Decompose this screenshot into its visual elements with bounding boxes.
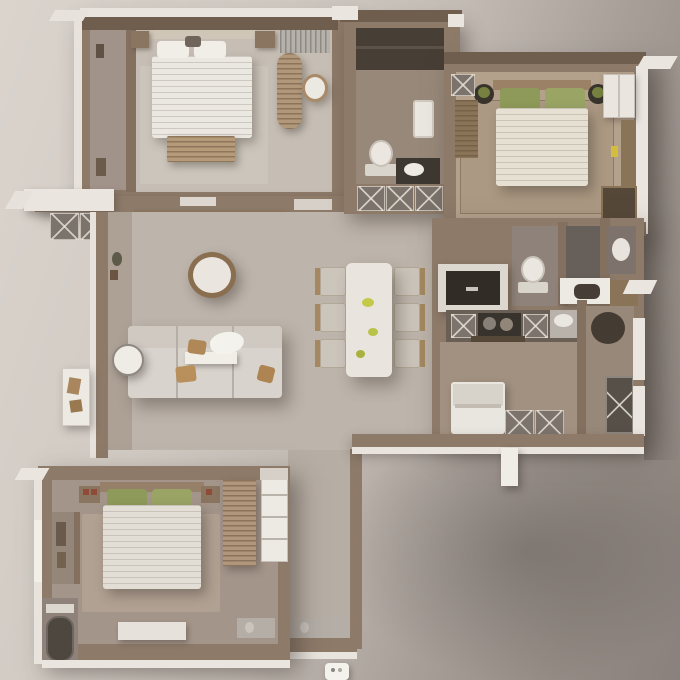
thermostat-chip bbox=[325, 663, 349, 680]
bedroom2-bed-duvet bbox=[496, 108, 588, 186]
dining-table bbox=[346, 263, 392, 377]
living-left-wall bbox=[96, 212, 108, 458]
bedroom1-accent-pillow bbox=[185, 36, 201, 47]
bathroom1-sink-basin bbox=[404, 163, 424, 176]
bedroom3-shelf-line-2 bbox=[261, 516, 288, 518]
kitchen-bar-faucet bbox=[466, 287, 478, 291]
bathroom1-top-cap-left bbox=[332, 6, 358, 20]
balcony-closet-item-top bbox=[96, 44, 104, 58]
kitchen-cabinet-x-2 bbox=[523, 314, 548, 338]
bedroom2-closet-door-line bbox=[618, 74, 620, 118]
bedroom2-desk-lamp bbox=[611, 146, 618, 157]
floor-plan bbox=[0, 0, 680, 680]
dining-table-dish-1 bbox=[362, 298, 374, 307]
washing-machine-lid bbox=[453, 384, 503, 406]
corridor-dark-basin bbox=[591, 312, 625, 344]
dining-chair-back-4 bbox=[420, 268, 425, 295]
entry-cabinet-x-1 bbox=[50, 213, 79, 240]
bathroom1-toilet-bowl bbox=[369, 140, 393, 167]
hallway-bottom-cap bbox=[285, 652, 357, 659]
bedroom2-cabinet-dark bbox=[601, 186, 637, 222]
dining-chair-back-5 bbox=[420, 304, 425, 331]
bedroom1-nightstand-left bbox=[131, 31, 149, 48]
doorway-threshold-bedroom1 bbox=[294, 199, 332, 210]
wall-item-left bbox=[110, 270, 118, 280]
background-shadow-right-edge bbox=[644, 60, 680, 460]
bathroom1-top-wall-dark bbox=[340, 10, 462, 22]
dining-chair-seat-4 bbox=[394, 267, 420, 296]
bedroom1-divider-wall bbox=[126, 30, 136, 192]
wall-plant-left bbox=[112, 252, 122, 266]
entry-door-leaf bbox=[501, 448, 518, 486]
bedroom2-ladder-shelf bbox=[455, 100, 478, 158]
bedroom3-nightstand-left-knob-2 bbox=[91, 489, 97, 495]
bedroom3-doormat bbox=[237, 618, 275, 638]
bathroom3-fixture bbox=[612, 238, 630, 261]
dining-chair-seat-2 bbox=[320, 303, 346, 332]
bedroom3-door-threshold bbox=[260, 468, 288, 480]
bedroom3-doormat-object bbox=[245, 622, 254, 633]
bedroom2-right-wall-cap bbox=[636, 66, 648, 234]
washing-machine-handle bbox=[455, 404, 501, 408]
hallway-mat-object bbox=[300, 622, 309, 633]
corridor-right-cap-1 bbox=[633, 318, 645, 380]
hallway-right-wall bbox=[350, 449, 362, 649]
kitchen-low-cabinet-x-2 bbox=[535, 410, 564, 436]
bedroom3-bottom-cap bbox=[42, 660, 290, 668]
bedroom3-niche-item-1 bbox=[56, 522, 66, 546]
wall-top-white-segment bbox=[180, 197, 216, 206]
bathroom2-toilet-tank bbox=[518, 282, 548, 293]
sofa-cushion-wood-1 bbox=[187, 339, 207, 355]
kitchen-sink-basin bbox=[554, 314, 573, 327]
bedroom1-bed-duvet bbox=[152, 56, 252, 138]
bedroom2-cabinet-x bbox=[451, 74, 475, 96]
dining-chair-back-6 bbox=[420, 340, 425, 367]
bathroom1-closet-dark bbox=[356, 28, 444, 70]
dining-chair-seat-3 bbox=[320, 339, 346, 368]
bedroom3-shelf-line-1 bbox=[261, 494, 288, 496]
dining-table-dish-2 bbox=[368, 328, 378, 336]
bathroom1-cabinet-x-1 bbox=[357, 186, 385, 211]
corridor-right-cap-2 bbox=[633, 386, 645, 436]
bedroom2-plant-left-leaves bbox=[478, 87, 490, 98]
thermostat-chip-dot-1 bbox=[331, 668, 335, 672]
shower-glass-door bbox=[605, 376, 634, 434]
bedroom1-foot-bench bbox=[167, 136, 235, 162]
bedroom1-headboard bbox=[150, 30, 256, 39]
bedroom3-nightstand-left-knob-1 bbox=[83, 489, 89, 495]
hallway-mat-2 bbox=[324, 616, 350, 637]
bedroom3-shelf-line-3 bbox=[261, 538, 288, 540]
thermostat-chip-dot-2 bbox=[338, 668, 342, 672]
sofa-tray bbox=[185, 352, 237, 364]
bathroom1-mirror bbox=[413, 100, 434, 138]
bedroom2-top-wall-dark bbox=[444, 52, 646, 64]
bedroom1-curtain bbox=[280, 30, 330, 53]
bedroom3-bed-duvet bbox=[103, 505, 201, 589]
bedroom1-left-wall-cap bbox=[74, 12, 82, 198]
bedroom1-top-wall-dark bbox=[80, 17, 338, 30]
bathroom1-closet-shelf bbox=[356, 46, 444, 49]
bathroom1-cabinet-x-3 bbox=[415, 186, 443, 211]
shower-floor-dark bbox=[566, 226, 600, 280]
kitchen-pan-2 bbox=[500, 318, 513, 331]
dining-table-dish-3 bbox=[356, 350, 365, 358]
bedroom2-desk-strip bbox=[621, 120, 636, 186]
bedroom1-round-stool bbox=[302, 74, 328, 102]
dining-chair-seat-6 bbox=[394, 339, 420, 368]
bedroom3-wardrobe-louver bbox=[223, 480, 256, 566]
kitchen-low-cabinet-x-1 bbox=[505, 410, 534, 436]
console-left-wall bbox=[62, 368, 90, 426]
vanity-bowl bbox=[574, 284, 600, 299]
bedroom3-dresser bbox=[118, 622, 186, 640]
sofa-seam-1 bbox=[176, 326, 178, 398]
bedroom1-nightstand-right bbox=[255, 31, 275, 48]
ensuite-shelf bbox=[46, 604, 74, 613]
balcony-closet-item-bottom bbox=[96, 158, 106, 176]
bathroom1-top-cap-right bbox=[448, 14, 464, 27]
sofa-cushion-wood-2 bbox=[175, 365, 197, 383]
bedroom1-wardrobe-pill bbox=[277, 53, 302, 129]
kitchen-pan-1 bbox=[483, 317, 496, 330]
window-ledge-top-left bbox=[49, 10, 89, 21]
bedroom3-niche-item-2 bbox=[57, 552, 66, 568]
ensuite-bathtub bbox=[46, 616, 74, 662]
bedroom3-niche-divider bbox=[74, 512, 80, 584]
window-ledge-living-left bbox=[24, 189, 114, 211]
bedroom3-window-white bbox=[34, 520, 42, 582]
dining-chair-seat-5 bbox=[394, 303, 420, 332]
round-side-table-small bbox=[112, 344, 144, 376]
dining-chair-seat-1 bbox=[320, 267, 346, 296]
bedroom3-nightstand-right-knob bbox=[206, 489, 212, 495]
kitchen-cabinet-x-1 bbox=[451, 314, 476, 338]
console-item-2 bbox=[69, 399, 83, 413]
bathroom1-cabinet-x-2 bbox=[386, 186, 414, 211]
living-south-wall-cap bbox=[352, 447, 644, 454]
round-side-table-large bbox=[188, 252, 236, 298]
bathroom2-toilet-bowl bbox=[521, 256, 545, 283]
